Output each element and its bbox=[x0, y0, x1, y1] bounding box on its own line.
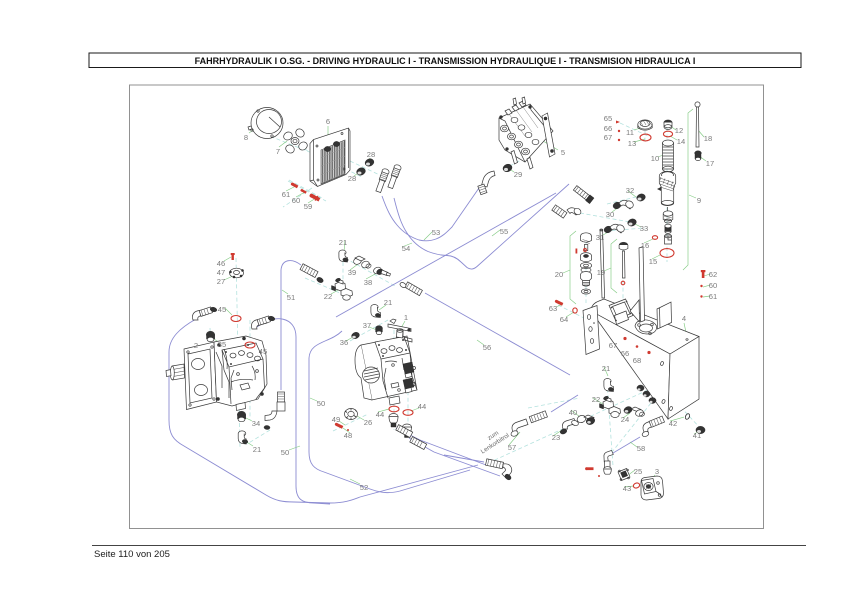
svg-text:18: 18 bbox=[704, 134, 712, 143]
svg-text:45: 45 bbox=[218, 305, 226, 314]
svg-text:53: 53 bbox=[432, 228, 440, 237]
svg-text:67: 67 bbox=[604, 133, 612, 142]
svg-text:21: 21 bbox=[339, 238, 347, 247]
svg-text:44: 44 bbox=[376, 410, 384, 419]
svg-text:8: 8 bbox=[244, 133, 248, 142]
svg-text:15: 15 bbox=[649, 257, 657, 266]
svg-text:37: 37 bbox=[363, 321, 371, 330]
svg-text:5: 5 bbox=[561, 148, 565, 157]
svg-text:59: 59 bbox=[304, 202, 312, 211]
svg-text:55: 55 bbox=[500, 227, 508, 236]
svg-text:60: 60 bbox=[709, 281, 717, 290]
svg-text:3: 3 bbox=[655, 467, 659, 476]
svg-text:21: 21 bbox=[253, 445, 261, 454]
svg-text:66: 66 bbox=[621, 349, 629, 358]
svg-text:28: 28 bbox=[367, 150, 375, 159]
svg-text:11: 11 bbox=[626, 128, 634, 137]
svg-text:40: 40 bbox=[569, 408, 577, 417]
svg-text:6: 6 bbox=[326, 117, 330, 126]
svg-text:26: 26 bbox=[364, 418, 372, 427]
svg-text:34: 34 bbox=[252, 419, 260, 428]
svg-text:42: 42 bbox=[669, 419, 677, 428]
svg-text:FAHRHYDRAULIK I O.SG. - DRIVIN: FAHRHYDRAULIK I O.SG. - DRIVING HYDRAULI… bbox=[195, 56, 696, 66]
svg-text:14: 14 bbox=[677, 137, 685, 146]
svg-text:7: 7 bbox=[276, 147, 280, 156]
svg-text:48: 48 bbox=[344, 431, 352, 440]
svg-text:57: 57 bbox=[508, 443, 516, 452]
svg-text:35: 35 bbox=[218, 340, 226, 349]
svg-text:27: 27 bbox=[217, 277, 225, 286]
svg-text:1: 1 bbox=[404, 313, 408, 322]
svg-text:50: 50 bbox=[317, 399, 325, 408]
svg-text:44: 44 bbox=[418, 402, 426, 411]
svg-text:28: 28 bbox=[348, 174, 356, 183]
svg-text:16: 16 bbox=[641, 241, 649, 250]
svg-text:25: 25 bbox=[634, 467, 642, 476]
svg-text:66: 66 bbox=[604, 124, 612, 133]
svg-text:33: 33 bbox=[640, 224, 648, 233]
svg-text:45: 45 bbox=[259, 347, 267, 356]
svg-text:12: 12 bbox=[675, 126, 683, 135]
svg-text:4: 4 bbox=[682, 314, 686, 323]
svg-text:Seite 110 von 205: Seite 110 von 205 bbox=[94, 549, 170, 560]
svg-text:31: 31 bbox=[596, 233, 604, 242]
svg-text:21: 21 bbox=[384, 298, 392, 307]
svg-text:50: 50 bbox=[281, 448, 289, 457]
svg-text:30: 30 bbox=[606, 210, 614, 219]
svg-text:67: 67 bbox=[609, 341, 617, 350]
svg-text:52: 52 bbox=[360, 483, 368, 492]
svg-text:21: 21 bbox=[602, 364, 610, 373]
svg-text:61: 61 bbox=[709, 292, 717, 301]
svg-text:10: 10 bbox=[651, 154, 659, 163]
svg-text:68: 68 bbox=[633, 356, 641, 365]
svg-text:32: 32 bbox=[626, 186, 634, 195]
svg-text:43: 43 bbox=[623, 484, 631, 493]
svg-text:41: 41 bbox=[693, 431, 701, 440]
svg-text:65: 65 bbox=[604, 114, 612, 123]
svg-text:22: 22 bbox=[324, 292, 332, 301]
svg-text:64: 64 bbox=[560, 315, 568, 324]
svg-text:47: 47 bbox=[217, 268, 225, 277]
svg-text:36: 36 bbox=[340, 338, 348, 347]
svg-text:39: 39 bbox=[348, 268, 356, 277]
svg-text:23: 23 bbox=[552, 433, 560, 442]
svg-text:46: 46 bbox=[217, 259, 225, 268]
svg-text:63: 63 bbox=[549, 304, 557, 313]
svg-text:19: 19 bbox=[597, 268, 605, 277]
svg-text:17: 17 bbox=[706, 159, 714, 168]
svg-text:20: 20 bbox=[555, 270, 563, 279]
svg-text:58: 58 bbox=[637, 444, 645, 453]
svg-text:62: 62 bbox=[709, 270, 717, 279]
svg-text:9: 9 bbox=[697, 196, 701, 205]
svg-text:49: 49 bbox=[332, 415, 340, 424]
svg-text:2: 2 bbox=[194, 341, 198, 350]
svg-text:22: 22 bbox=[592, 395, 600, 404]
svg-text:60: 60 bbox=[292, 196, 300, 205]
svg-text:24: 24 bbox=[621, 415, 629, 424]
svg-text:13: 13 bbox=[628, 139, 636, 148]
svg-text:29: 29 bbox=[514, 170, 522, 179]
svg-text:56: 56 bbox=[483, 343, 491, 352]
svg-text:51: 51 bbox=[287, 293, 295, 302]
svg-text:38: 38 bbox=[364, 278, 372, 287]
svg-text:54: 54 bbox=[402, 244, 410, 253]
svg-text:61: 61 bbox=[282, 190, 290, 199]
